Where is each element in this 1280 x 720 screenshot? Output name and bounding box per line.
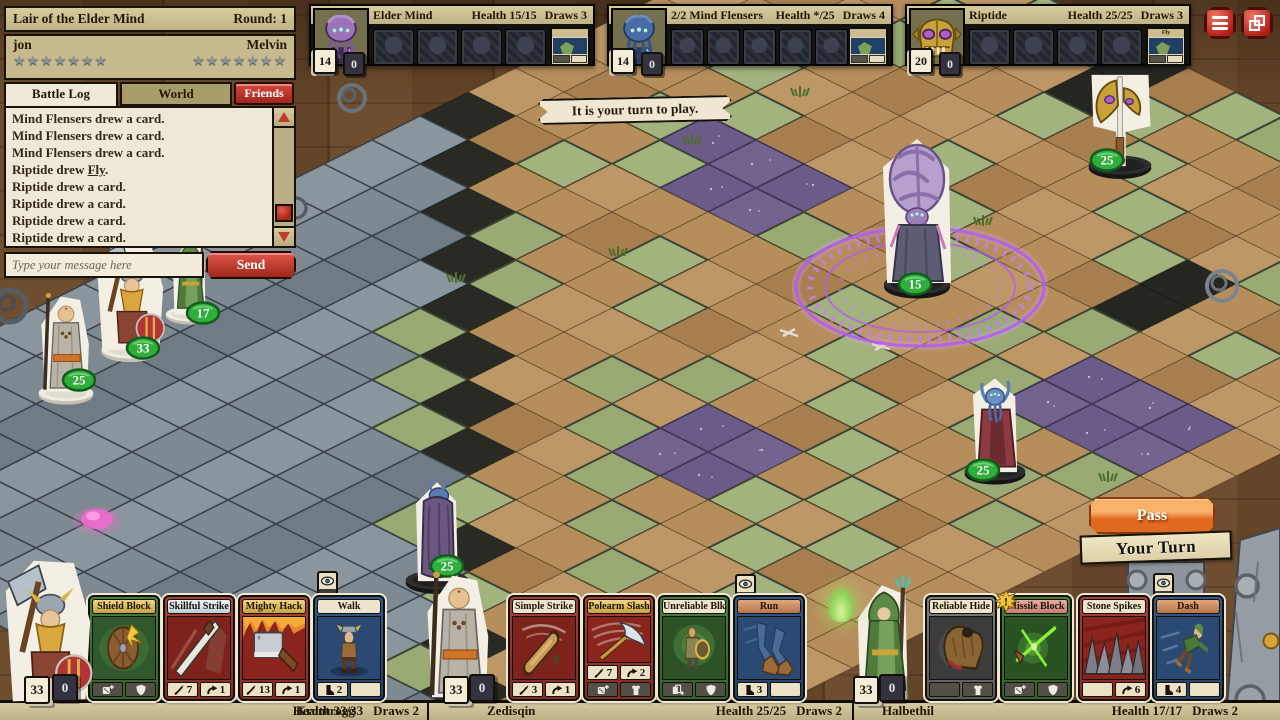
card-stat	[620, 682, 651, 697]
svg-text:25: 25	[73, 373, 87, 388]
boot-icon	[743, 684, 755, 696]
visibility-eye-marker	[317, 571, 338, 598]
die-plus-icon	[597, 684, 609, 696]
mini-card-stats	[552, 55, 588, 64]
tab-world[interactable]: World	[120, 82, 232, 106]
hand-card[interactable]: Reliable Hide	[925, 595, 997, 701]
card-back	[1013, 29, 1054, 65]
card-art-image	[588, 617, 650, 662]
card-back	[1101, 29, 1142, 65]
hand-card[interactable]: Dash 4	[1152, 595, 1224, 701]
card-stat	[1082, 682, 1113, 697]
tab-battle-log[interactable]: Battle Log	[4, 82, 118, 106]
star-icon: ★	[192, 53, 206, 69]
card-back	[1057, 29, 1098, 65]
svg-text:!: !	[1004, 595, 1008, 609]
card-title: Run	[737, 599, 801, 614]
card-art-image	[663, 617, 725, 679]
card-art-image	[930, 617, 992, 679]
card-title: Stone Spikes	[1082, 599, 1146, 614]
eye-icon	[320, 575, 335, 587]
shield-icon	[1047, 684, 1059, 696]
card-art-club	[512, 616, 576, 680]
mini-card-art	[553, 38, 587, 54]
arrow-down-icon	[278, 232, 290, 242]
player-rating-left: ★★★★★★★	[13, 52, 108, 70]
card-stat: 13	[242, 682, 273, 697]
menu-button[interactable]	[1204, 7, 1236, 39]
card-back	[461, 29, 502, 65]
deck-count-badge: 14	[611, 48, 635, 74]
mini-card-stats	[1148, 55, 1184, 64]
svg-text:25: 25	[1101, 153, 1115, 168]
turn-announcement-banner: It is your turn to play.	[538, 95, 733, 125]
svg-text:25: 25	[977, 463, 991, 478]
card-art-shield-figure	[662, 616, 726, 680]
hand-card[interactable]: Polearm Slash 72	[583, 595, 655, 701]
arrow-up-icon	[278, 112, 290, 122]
enemy-health: Health */25	[776, 8, 835, 23]
health-badge: 25	[63, 370, 95, 391]
eye-icon	[738, 578, 753, 590]
card-art-running-legs	[737, 616, 801, 680]
card-title: Unreliable Blk	[662, 599, 726, 614]
log-entry: Mind Flensers drew a card.	[12, 127, 268, 144]
mini-card-art	[1149, 38, 1183, 54]
enemy-hand	[671, 29, 848, 65]
card-title: Walk	[317, 599, 381, 614]
mini-card-title: Fly	[1148, 29, 1184, 37]
shield-icon	[705, 684, 717, 696]
enemy-draws: Draws 3	[545, 8, 587, 23]
card-title: Dash	[1156, 599, 1220, 614]
arrow-icon	[551, 684, 563, 696]
enemy-panel: Elder Mind Health 15/15 Draws 3 14 0	[309, 4, 595, 66]
card-back	[707, 29, 740, 65]
chat-tabs: Battle Log World Friends	[4, 82, 296, 106]
card-title: Shield Block	[92, 599, 156, 614]
card-art-image	[318, 617, 380, 679]
enemy-draws: Draws 3	[1141, 8, 1183, 23]
scroll-up-button[interactable]	[274, 108, 294, 128]
character-health: Health 17/17Draws 2	[1112, 703, 1238, 719]
card-stat: 7	[167, 682, 198, 697]
card-stat: 3	[737, 682, 768, 697]
log-scrollbar[interactable]	[272, 106, 296, 248]
discard-count-badge: 0	[879, 674, 905, 702]
enemy-health: Health 25/25	[1068, 8, 1133, 23]
mini-card-title	[552, 29, 588, 37]
card-art-image	[738, 617, 800, 679]
sword-icon	[173, 684, 185, 696]
star-icon: ★	[94, 53, 108, 69]
discard-count-badge: 0	[52, 674, 78, 702]
star-icon: ★	[273, 53, 287, 69]
hand-card[interactable]: Mighty Hack 131	[238, 595, 310, 701]
sword-icon	[518, 684, 530, 696]
card-stat	[587, 682, 618, 697]
health-badge: 25	[1091, 150, 1123, 171]
arrow-icon	[206, 684, 218, 696]
card-art-image	[1005, 617, 1067, 679]
card-stat: 2	[620, 665, 651, 680]
star-icon: ★	[13, 53, 27, 69]
star-icon: ★	[81, 53, 95, 69]
trait-alert-icon: !	[995, 590, 1017, 612]
hand-card[interactable]: ! Missile Block	[1000, 595, 1072, 701]
log-entry: Mind Flensers drew a card.	[12, 110, 268, 127]
your-turn-banner: Your Turn	[1080, 530, 1233, 564]
log-entry: Riptide drew Fly.	[12, 161, 268, 178]
card-title: Polearm Slash	[587, 599, 651, 614]
card-back	[779, 29, 812, 65]
card-stat: 1	[200, 682, 231, 697]
sword-icon	[593, 667, 605, 679]
die-plus-icon	[102, 684, 114, 696]
green-flame-effect	[828, 588, 854, 622]
svg-text:17: 17	[197, 306, 211, 321]
hand-card[interactable]: Skillful Strike 71	[163, 595, 235, 701]
log-entry: Riptide drew a card.	[12, 178, 268, 195]
star-icon: ★	[260, 53, 274, 69]
card-back	[815, 29, 848, 65]
health-badge: 33	[127, 338, 159, 359]
card-art-walking-figure	[317, 616, 381, 680]
card-art-cleaver	[242, 616, 306, 680]
deck-count-badge: 33	[853, 676, 879, 704]
card-stat	[962, 682, 993, 697]
card-art-hide-armor	[929, 616, 993, 680]
card-stat: 1	[275, 682, 306, 697]
svg-text:33: 33	[137, 341, 151, 356]
scroll-thumb[interactable]	[275, 204, 293, 222]
pass-button[interactable]: Pass	[1089, 497, 1215, 534]
enemy-faceup-card[interactable]	[848, 27, 888, 66]
enemy-name: Elder Mind	[373, 8, 432, 23]
card-stat	[1189, 682, 1220, 697]
send-button[interactable]: Send	[206, 251, 296, 279]
card-stat: 3	[512, 682, 543, 697]
mini-card-art	[851, 38, 885, 54]
card-back	[743, 29, 776, 65]
arrow-icon	[281, 684, 293, 696]
deck-count-badge: 20	[909, 48, 933, 74]
card-title: Skillful Strike	[167, 599, 231, 614]
health-badge: 17	[187, 303, 219, 324]
svg-text:15: 15	[909, 277, 923, 292]
card-stat: 6	[1115, 682, 1146, 697]
boot-icon	[1162, 684, 1174, 696]
figure-riptide[interactable]: 25	[1089, 75, 1152, 179]
star-icon: ★	[54, 53, 68, 69]
player-rating-right: ★★★★★★★	[192, 52, 287, 70]
sword-icon	[245, 684, 257, 696]
die-plus-icon	[1014, 684, 1026, 696]
card-back	[417, 29, 458, 65]
enemy-faceup-card[interactable]	[550, 27, 590, 66]
star-icon: ★	[67, 53, 81, 69]
star-icon: ★	[219, 53, 233, 69]
log-card-link[interactable]: Fly	[88, 162, 105, 177]
character-standee-dwarf[interactable]	[0, 556, 100, 711]
log-entry: Mind Flensers drew a card.	[12, 144, 268, 161]
card-art-dashing-figure	[1156, 616, 1220, 680]
log-entry: Riptide drew a card.	[12, 195, 268, 212]
card-back	[671, 29, 704, 65]
star-icon: ★	[233, 53, 247, 69]
enemy-hand	[969, 29, 1142, 65]
card-title: Reliable Hide	[929, 599, 993, 614]
boot-icon	[323, 684, 335, 696]
card-art-image	[1083, 617, 1145, 679]
card-back	[373, 29, 414, 65]
cards-plus-icon	[672, 684, 684, 696]
pink-blob-figure[interactable]	[73, 507, 121, 535]
deck-count-badge: 33	[443, 676, 469, 704]
card-stat	[350, 682, 381, 697]
hand-card[interactable]: Unreliable Blk	[658, 595, 730, 701]
windows-button[interactable]	[1241, 7, 1273, 39]
arrow-icon	[1121, 684, 1133, 696]
battle-log: Mind Flensers drew a card.Mind Flensers …	[4, 106, 296, 248]
card-art-green-bolt	[1004, 616, 1068, 680]
player-name-left: jon	[13, 37, 32, 53]
card-art-image	[168, 617, 230, 679]
enemy-name: 2/2 Mind Flensers	[671, 8, 763, 23]
players-box: jon Melvin ★★★★★★★ ★★★★★★★	[4, 34, 296, 80]
hand-card[interactable]: Run 3	[733, 595, 805, 701]
card-art-image	[513, 617, 575, 679]
card-stat: 1	[545, 682, 576, 697]
card-stat	[125, 682, 156, 697]
discard-count-badge: 0	[939, 52, 961, 76]
armor-icon	[630, 684, 642, 696]
character-health: Health 33/33Draws 2	[293, 703, 419, 719]
hamburger-icon	[1212, 14, 1228, 33]
discard-count-badge: 0	[641, 52, 663, 76]
star-icon: ★	[246, 53, 260, 69]
card-stat: 2	[317, 682, 348, 697]
card-back	[505, 29, 546, 65]
card-art-image	[93, 617, 155, 679]
armor-icon	[972, 684, 984, 696]
chat-input[interactable]	[4, 252, 204, 278]
enemy-faceup-card[interactable]: Fly	[1146, 27, 1186, 66]
hand-card[interactable]: Stone Spikes 6	[1078, 595, 1150, 701]
overlapping-windows-icon	[1249, 15, 1265, 31]
card-stat: 7	[587, 665, 618, 680]
deck-count-badge: 33	[24, 676, 50, 704]
character-health: Health 25/25Draws 2	[716, 703, 842, 719]
card-stat: 4	[1156, 682, 1187, 697]
card-stat	[929, 682, 960, 697]
mini-card-title	[850, 29, 886, 37]
eye-icon	[1156, 577, 1171, 589]
card-stat	[662, 682, 693, 697]
enemy-draws: Draws 4	[843, 8, 885, 23]
figure-elder-mind[interactable]: 15	[883, 139, 951, 299]
player-name-right: Melvin	[247, 37, 288, 53]
card-art-image	[1157, 617, 1219, 679]
star-icon: ★	[27, 53, 41, 69]
arrow-icon	[626, 667, 638, 679]
character-draws: Draws 2	[1192, 703, 1238, 718]
card-art-image	[243, 617, 305, 679]
mini-card-stats	[850, 55, 886, 64]
deck-count-badge: 14	[313, 48, 337, 74]
discard-count-badge: 0	[469, 674, 495, 702]
star-icon: ★	[206, 53, 220, 69]
hand-card[interactable]: Simple Strike 31	[508, 595, 580, 701]
enemy-panel: Riptide Health 25/25 Draws 3 Fly 20 0	[905, 4, 1191, 66]
enemy-panel: 2/2 Mind Flensers Health */25 Draws 4 14…	[607, 4, 893, 66]
friends-button[interactable]: Friends	[234, 82, 294, 105]
scenario-title: Lair of the Elder Mind	[13, 11, 145, 27]
health-badge: 25	[967, 460, 999, 481]
card-stat	[770, 682, 801, 697]
discard-count-badge: 0	[343, 52, 365, 76]
health-badge: 15	[899, 274, 931, 295]
card-stat	[1037, 682, 1068, 697]
shield-icon	[135, 684, 147, 696]
scroll-down-button[interactable]	[274, 226, 294, 246]
hand-card[interactable]: Walk 2	[313, 595, 385, 701]
card-art-spikes	[1082, 616, 1146, 680]
card-back	[969, 29, 1010, 65]
card-stat	[1004, 682, 1035, 697]
card-art-sword-slash	[167, 616, 231, 680]
card-art-round-shield	[92, 616, 156, 680]
enemy-name: Riptide	[969, 8, 1007, 23]
log-entry: Riptide drew a card.	[12, 229, 268, 246]
enemy-hand	[373, 29, 546, 65]
log-entry: Riptide drew a card.	[12, 212, 268, 229]
card-title: Mighty Hack	[242, 599, 306, 614]
enemy-health: Health 15/15	[472, 8, 537, 23]
card-art-polearm	[587, 616, 651, 663]
card-stat	[695, 682, 726, 697]
card-title: Simple Strike	[512, 599, 576, 614]
star-icon: ★	[40, 53, 54, 69]
round-counter: Round: 1	[233, 11, 287, 27]
scenario-title-bar: Lair of the Elder Mind Round: 1	[4, 6, 296, 32]
